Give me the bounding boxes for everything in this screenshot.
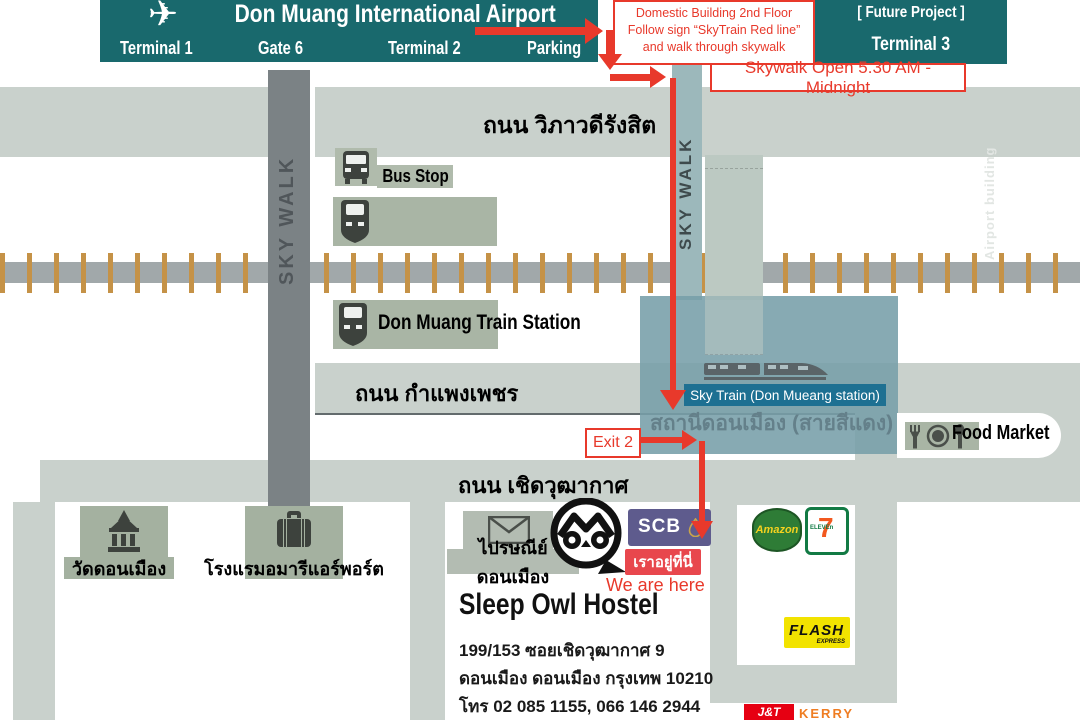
hostel-name: Sleep Owl Hostel (459, 588, 702, 622)
jt-express-logo: J&T (744, 704, 794, 720)
temple-icon (103, 510, 145, 554)
route-arrow-final-line (699, 441, 705, 523)
exit2-text: Exit 2 (593, 434, 633, 452)
hostel-address-1: 199/153 ซอยเชิดวุฒากาศ 9 (459, 637, 665, 664)
temple-label: วัดดอนเมือง (72, 554, 166, 583)
domestic-note-line3: and walk through skywalk (615, 39, 813, 56)
bus-stop-label-bg: Bus Stop (377, 165, 453, 188)
route-arrow-skywalk-head (660, 390, 686, 410)
railway-ties (0, 253, 1080, 293)
route-arrow-skywalk-line (670, 78, 676, 392)
parking-label: Parking (527, 38, 593, 59)
walkway-joint-line (705, 168, 763, 169)
flash-sub-text: EXPRESS (817, 639, 845, 645)
future-project-box: [ Future Project ] Terminal 3 (815, 0, 1007, 64)
map-canvas: ถนน วิภาวดีรังสิต ถนน กำแพงเพชร ถนน เชิด… (0, 0, 1080, 720)
exit2-box: Exit 2 (585, 428, 641, 458)
domestic-note-line1: Domestic Building 2nd Floor (615, 5, 813, 22)
bus-stop-label: Bus Stop (382, 166, 448, 187)
skywalk-hours-box: Skywalk Open 5.30 AM - Midnight (710, 63, 966, 92)
road-vibhavadi-left (0, 87, 268, 157)
future-project-label: [ Future Project ] (815, 4, 1007, 22)
road-label-vibhavadi: ถนน วิภาวดีรังสิต (483, 108, 656, 144)
right-building (897, 502, 1080, 720)
road-label-kamphaengphet: ถนน กำแพงเพชร (355, 376, 518, 411)
scb-logo-text: SCB (638, 516, 681, 538)
sky-train-label-text: Sky Train (Don Mueang station) (690, 388, 880, 403)
sky-train-label: Sky Train (Don Mueang station) (684, 384, 886, 406)
terminal2-label: Terminal 2 (388, 38, 477, 59)
skywalk-bar-label: SKY WALK (276, 140, 299, 285)
station-walkway (705, 155, 763, 300)
hostel-address-2: ดอนเมือง ดอนเมือง กรุงเทพ 10210 (459, 665, 713, 692)
domestic-note-box: Domestic Building 2nd Floor Follow sign … (613, 0, 815, 65)
route-arrow-elbow-head (650, 66, 666, 88)
jt-text: J&T (758, 705, 781, 719)
kerry-logo: KERRY (799, 706, 854, 720)
hotel-label: โรงแรมอมารีแอร์พอร์ต (204, 554, 384, 583)
street-left-vertical (13, 502, 55, 720)
bus-icon (340, 149, 372, 185)
route-arrow-elbow-line (610, 74, 652, 81)
street-right-vertical (855, 502, 897, 720)
seven-eleven-text: ELEVEn (810, 525, 833, 531)
suitcase-icon (274, 510, 314, 552)
terminal3-label: Terminal 3 (815, 34, 1007, 56)
route-arrow-exit-head (682, 430, 697, 450)
station-inner-walkway (705, 296, 763, 355)
route-arrow-exit-line (639, 437, 684, 443)
train-station-label: Don Muang Train Station (378, 311, 625, 335)
here-badge: เราอยู่ที่นี่ (625, 549, 701, 575)
skywalk-hours-text: Skywalk Open 5.30 AM - Midnight (712, 58, 964, 98)
railway-track (0, 253, 1080, 293)
flash-express-logo: FLASH EXPRESS (784, 617, 850, 648)
domestic-note-line2: Follow sign “SkyTrain Red line” (615, 22, 813, 39)
route-arrow-header-head (585, 18, 603, 44)
sky-train-icon (700, 357, 835, 385)
here-badge-text: เราอยู่ที่นี่ (633, 550, 693, 574)
route-arrow-down1-head (598, 54, 622, 70)
food-market-label: Food Market (952, 422, 1071, 445)
cafe-amazon-logo: Amazon (752, 508, 802, 552)
route-arrow-final-head (691, 521, 713, 539)
skywalk-bar (268, 70, 310, 507)
flash-text: FLASH (789, 622, 844, 639)
train-front-icon-top (341, 200, 369, 243)
cafe-amazon-text: Amazon (756, 524, 799, 536)
hotel-label-bg: โรงแรมอมารีแอร์พอร์ต (245, 557, 343, 579)
temple-label-bg: วัดดอนเมือง (64, 557, 174, 579)
hostel-phone: โทร 02 085 1155, 066 146 2944 (459, 693, 700, 720)
train-front-icon (339, 303, 367, 346)
airplane-icon: ✈ (148, 0, 178, 35)
airport-title: Don Muang International Airport (195, 0, 595, 29)
skywalk-band-label: SKY WALK (676, 105, 696, 250)
route-arrow-header-line (475, 27, 585, 35)
terminal1-label: Terminal 1 (120, 38, 209, 59)
street-mid-vertical (410, 502, 445, 720)
seven-eleven-logo: 7 ELEVEn (805, 507, 849, 555)
watermark-text: Airport building (982, 160, 997, 260)
road-choetwutthakat (40, 460, 855, 502)
route-arrow-down1-line (606, 30, 613, 55)
gate6-label: Gate 6 (258, 38, 313, 59)
